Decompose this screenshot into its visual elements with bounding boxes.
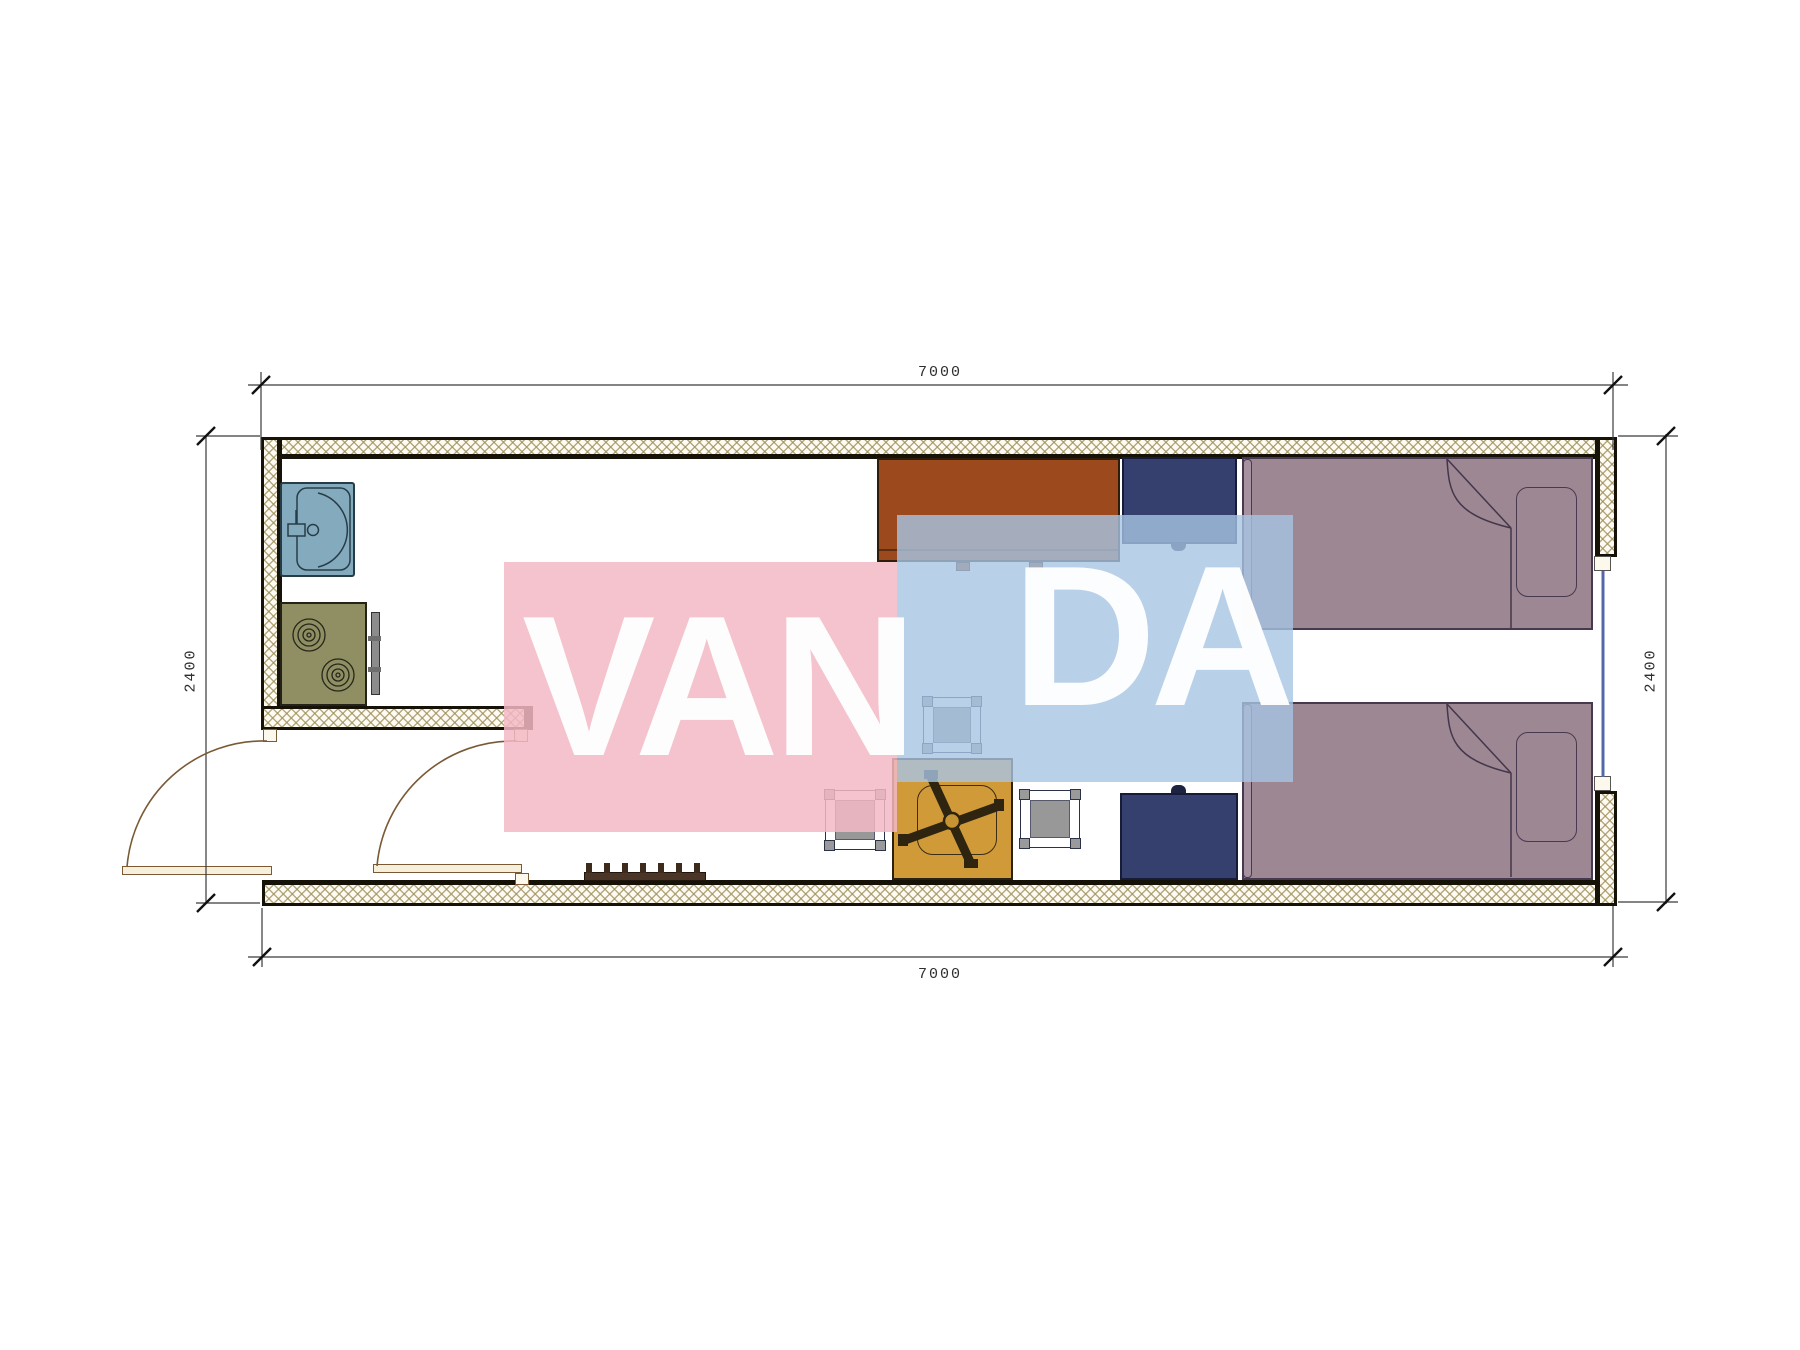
- dimension-label-top: 7000: [880, 364, 1000, 381]
- floor-plan-canvas: 7000 7000 2400 2400 VAN DA: [0, 0, 1800, 1350]
- dimension-label-right: 2400: [1643, 611, 1660, 731]
- stove-burners: [293, 619, 354, 691]
- bed-bottom-blanket-fold: [1447, 704, 1511, 877]
- dimension-label-bottom: 7000: [880, 966, 1000, 983]
- bed-top-blanket-fold: [1447, 459, 1511, 629]
- door-swing-arcs: [127, 741, 517, 867]
- watermark-text-van: VAN: [522, 587, 911, 787]
- sink-basin: [288, 488, 350, 570]
- watermark-text-da: DA: [1012, 537, 1289, 737]
- dimension-label-left: 2400: [183, 611, 200, 731]
- chair-cross-base: [898, 770, 1004, 868]
